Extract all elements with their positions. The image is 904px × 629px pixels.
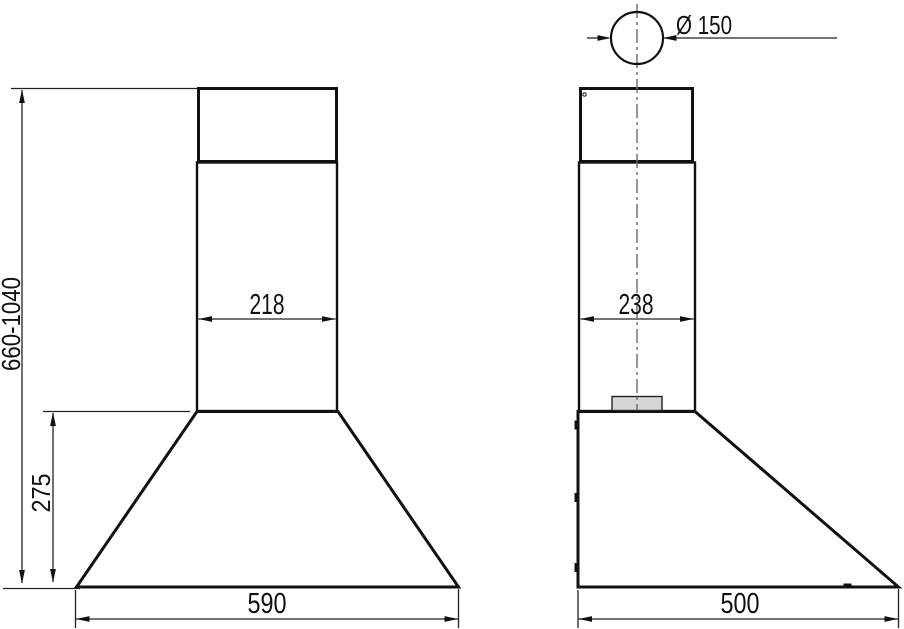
dim-body-depth: 500 bbox=[578, 588, 899, 628]
dim-label-chimney-width: 218 bbox=[250, 289, 285, 321]
dim-label-height-range: 660-1040 bbox=[0, 277, 26, 371]
dim-label-duct-diameter: Ø 150 bbox=[676, 10, 732, 40]
cooker-hood-dimension-drawing: 660-1040 275 218 590 bbox=[0, 0, 904, 629]
dim-height-range: 660-1040 bbox=[0, 89, 197, 589]
dim-arrow-left-icon bbox=[581, 316, 595, 322]
dim-chimney-width: 218 bbox=[199, 289, 336, 322]
mounting-lug-middle bbox=[575, 493, 578, 502]
screw-hole-icon bbox=[583, 93, 586, 96]
dim-label-body-width: 590 bbox=[248, 588, 287, 620]
dim-arrow-up-icon bbox=[50, 413, 56, 427]
dim-arrow-right-icon bbox=[598, 35, 612, 41]
front-view: 660-1040 275 218 590 bbox=[0, 89, 459, 629]
dimension-drawing-canvas: 660-1040 275 218 590 bbox=[0, 0, 904, 629]
front-upper-duct-cover bbox=[199, 89, 337, 162]
dim-label-canopy-height: 275 bbox=[26, 474, 56, 513]
bottom-stop-tab bbox=[844, 584, 852, 589]
dim-arrow-right-icon bbox=[322, 316, 336, 322]
dim-label-chimney-depth: 238 bbox=[619, 289, 654, 321]
dim-arrow-down-icon bbox=[50, 569, 56, 583]
dim-body-width: 590 bbox=[76, 588, 459, 628]
dim-label-body-depth: 500 bbox=[721, 588, 760, 620]
dim-duct-diameter: Ø 150 bbox=[587, 10, 837, 64]
side-hood-canopy bbox=[578, 412, 899, 588]
dim-canopy-height: 275 bbox=[26, 412, 190, 583]
dim-arrow-left-icon bbox=[76, 616, 90, 622]
dim-arrow-down-icon bbox=[19, 570, 25, 584]
dim-arrow-up-icon bbox=[19, 90, 25, 104]
dim-chimney-depth: 238 bbox=[581, 289, 694, 322]
dim-arrow-left-icon bbox=[579, 616, 593, 622]
mounting-lug-top bbox=[575, 421, 578, 430]
front-hood-canopy bbox=[77, 412, 459, 588]
side-view: Ø 150 238 500 bbox=[575, 4, 899, 628]
dim-arrow-right-icon bbox=[885, 616, 899, 622]
dim-arrow-right-icon bbox=[445, 616, 459, 622]
dim-arrow-left-icon bbox=[663, 35, 677, 41]
dim-arrow-right-icon bbox=[680, 316, 694, 322]
dim-arrow-left-icon bbox=[199, 316, 213, 322]
front-lower-duct-cover bbox=[197, 163, 337, 412]
mounting-lug-bottom bbox=[575, 563, 578, 572]
